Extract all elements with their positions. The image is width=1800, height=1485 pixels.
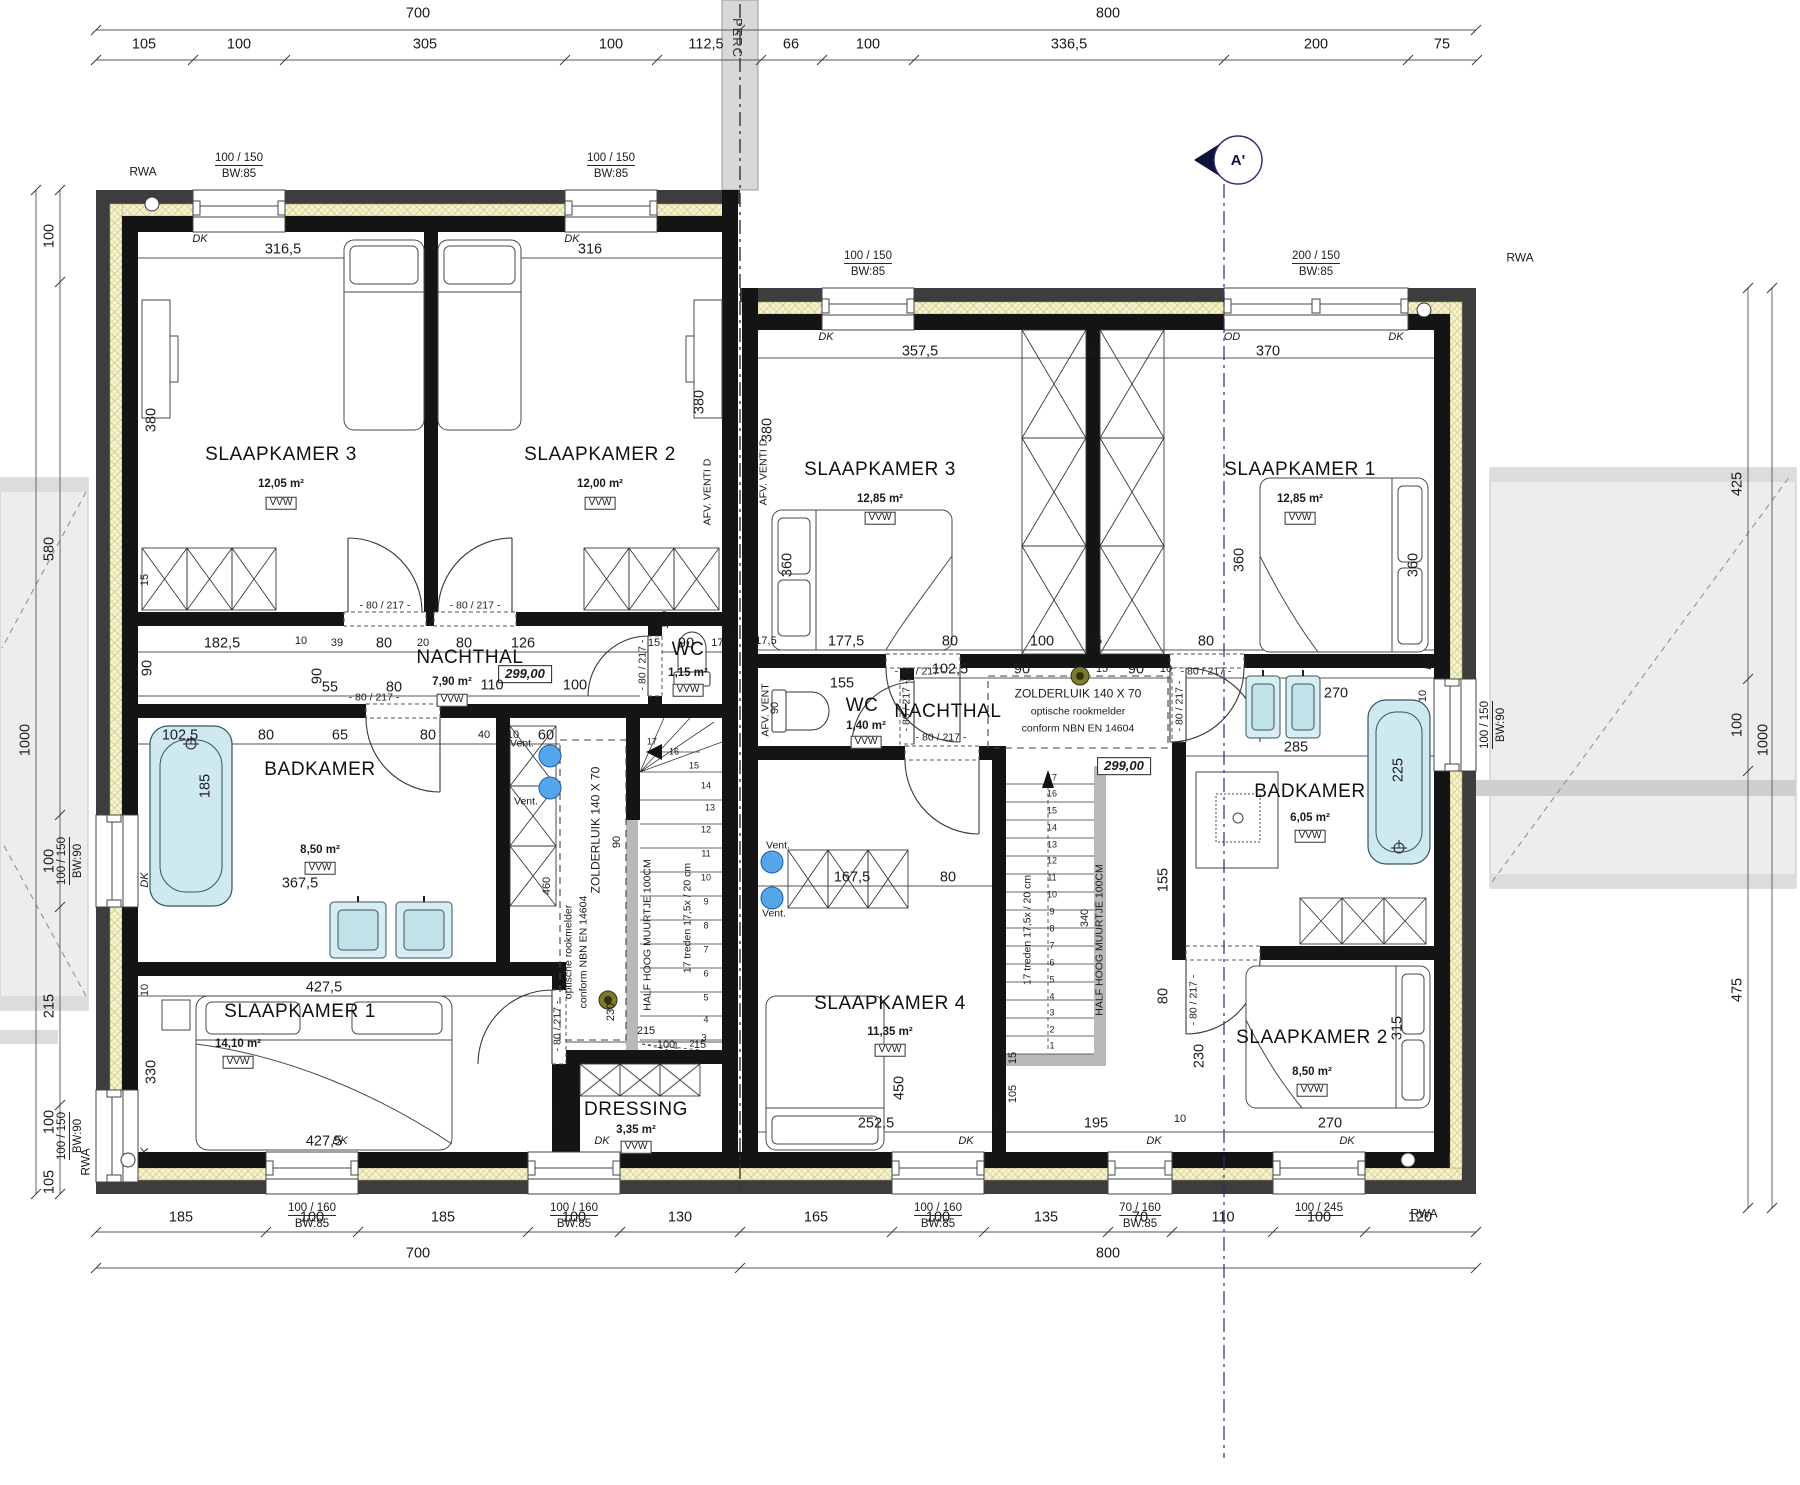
dk-labels-label: DK [1339,1136,1354,1148]
stair-left-label: 10 [701,873,711,882]
window-labels-label: 70 / 160 [1119,1202,1161,1216]
stair-right-label: 12 [1047,856,1057,865]
stair-left-label: 2 [689,1039,694,1048]
dims-bottom-label: 130 [668,1210,692,1225]
dims-top-label: 700 [406,6,430,21]
dims-inner-left-label: 185 [198,774,213,798]
stair-right-label: 17 [1047,773,1057,782]
dims-inner-left-label: 230 [606,1003,618,1021]
dims-inner-left-label: 80 [386,680,402,695]
dims-left-label: 1000 [18,724,33,756]
dims-top-label: 305 [413,37,437,52]
dims-inner-right-label: 155 [830,676,854,691]
annotations-label: optische rookmelder [1031,706,1126,717]
dims-right-label: 100 [1730,713,1745,737]
dims-inner-left-label: 10 [140,984,152,996]
annotations-label: ZOLDERLUIK 140 X 70 [590,767,603,894]
vent-labels-label: Vent. [514,796,538,807]
door-labels-label: - 80 / 217 - [637,640,648,691]
dk-labels-label: DK [1423,654,1435,669]
room-labels-left-label: DRESSING [584,1100,688,1120]
room-labels-left-label: VVW [585,497,616,510]
door-labels-label: - 80 / 217 - [901,681,912,732]
floorplan-canvas: 700800105100305100112,566100336,52007518… [0,0,1800,1485]
rwa-labels-label: RWA [1506,252,1533,265]
window-labels-label: 100 / 150 [56,837,70,885]
room-labels-right-label: BADKAMER [1254,782,1365,802]
dk-labels-label: DK [192,234,207,246]
dims-inner-right-label: 15 [1087,346,1099,358]
window-labels-label: BW:85 [1123,1218,1157,1230]
stair-right-label: 7 [1049,941,1054,950]
room-labels-left-label: 7,90 m² [432,676,472,688]
room-labels-right-label: VVW [1285,512,1316,525]
door-labels-label: - 80 / 217 - [450,600,501,611]
dims-inner-right-label: 370 [1256,344,1280,359]
dims-inner-right-label: 177,5 [828,634,864,649]
dims-inner-left-label: 15 [140,574,152,586]
dk-labels-label: OD [1224,332,1241,344]
dims-right-label: 425 [1730,472,1745,496]
room-labels-left-label: 8,50 m² [300,844,340,856]
dims-top-label: 66 [783,37,799,52]
dims-inner-left-label: 17,5 [711,638,732,650]
dims-inner-left-label: 10 [507,730,519,742]
stair-left-label: 9 [703,897,708,906]
dims-inner-left-label: 380 [692,390,707,414]
dims-inner-left-label: 316 [578,242,602,257]
door-labels-label: - 80 / 217 - [552,1001,563,1052]
stair-left-label: 13 [705,803,715,812]
window-labels-label: BW:85 [921,1218,955,1230]
dims-inner-right-label: 270 [1324,686,1348,701]
window-labels-label: BW:90 [1495,708,1507,742]
window-labels-label: 100 / 150 [215,152,263,166]
dims-inner-right-label: 102,5 [932,662,968,677]
room-labels-right-label: VVW [1297,1084,1328,1097]
stair-left-label: 11 [701,849,710,858]
dims-inner-left-label: 65 [332,728,348,743]
dims-inner-left-label: 20 [417,638,429,650]
dims-inner-right-label: 315 [1390,1016,1405,1040]
annotations-label: 17 treden 17,5x / 20 cm [1022,875,1033,985]
dims-inner-left-label: 10 [295,636,307,648]
vent-labels-label: Vent. [762,908,786,919]
dims-top-label: 100 [856,37,880,52]
dims-inner-left-label: 460 [542,877,554,895]
dims-inner-left-label: 100 [657,1040,675,1052]
dims-inner-right-label: 270 [1318,1116,1342,1131]
room-labels-left-label: VVW [673,684,704,697]
rwa-labels-label: RWA [80,1148,93,1175]
dims-inner-left-label: 55 [322,680,338,695]
section-marker-label: A' [1231,153,1245,169]
stair-left-label: 8 [703,921,708,930]
door-labels-label: - 80 / 217 - [916,732,967,743]
stair-left-label: 12 [701,825,711,834]
window-labels-label: 100 / 150 [587,152,635,166]
door-labels-label: - 80 / 217 - [1174,681,1185,732]
door-labels-label: - 80 / 217 - [360,600,411,611]
stair-right-label: 8 [1049,924,1054,933]
stair-left-label: 17 [647,737,657,746]
dims-top-label: 800 [1096,6,1120,21]
dims-inner-left-label: 367,5 [282,876,318,891]
dims-left-label: 580 [42,537,57,561]
annotations-label: 17 treden 17,5x / 20 cm [682,863,693,973]
dims-inner-left-label: 80 [420,728,436,743]
height-boxes-label: 299,00 [498,665,552,683]
dims-inner-right-label: 380 [760,418,775,442]
room-labels-left-label: VVW [305,862,336,875]
dims-inner-left-label: 427,5 [306,980,342,995]
stair-left-label: 14 [701,781,711,790]
dims-inner-right-label: 15 [1096,664,1108,676]
stair-right-label: 6 [1049,958,1054,967]
dims-top-label: 112,5 [688,37,723,52]
window-labels-label: BW:85 [295,1218,329,1230]
stair-right-label: 5 [1049,975,1054,984]
room-labels-right-label: VVW [865,512,896,525]
window-labels-label: 100 / 150 [844,250,892,264]
room-labels-left-label: SLAAPKAMER 3 [205,445,357,465]
annotations-label: conform NBN EN 14604 [1022,723,1135,734]
room-labels-right-label: VVW [875,1044,906,1057]
stair-left-label: 5 [703,993,708,1002]
dk-labels-label: DK [594,1136,609,1148]
dims-inner-right-label: 450 [892,1076,907,1100]
dims-inner-right-label: 10 [1174,1114,1186,1126]
dims-inner-left-label: 80 [258,728,274,743]
stair-right-label: 14 [1047,823,1057,832]
dims-inner-right-label: 100 [1030,634,1054,649]
door-labels-label: - 80 / 217 - [1181,666,1232,677]
dims-right-label: 1000 [1756,724,1771,756]
dims-top-label: 105 [132,37,156,52]
dims-top-label: 200 [1304,37,1328,52]
labels-layer: 700800105100305100112,566100336,52007518… [0,0,1800,1485]
dims-bottom-label: 185 [431,1210,455,1225]
window-labels-label: BW:90 [72,844,84,878]
dk-labels-label: DK [958,1136,973,1148]
dk-labels-label: DK [1146,1136,1161,1148]
stair-left-label: 16 [669,747,679,756]
dims-inner-left-label: 130 [660,611,672,629]
annotations-label: ZOLDERLUIK 140 X 70 [1015,688,1142,701]
annotations-label: AFV. VENTI D [702,459,713,526]
annotations-label: conform NBN EN 14604 [578,896,589,1009]
stair-right-label: 15 [1047,806,1057,815]
room-labels-left-label: VVW [621,1141,652,1154]
window-labels-label: 100 / 160 [914,1202,962,1216]
window-labels-label: 100 / 150 [1479,701,1493,749]
dims-inner-left-label: 40 [478,730,490,742]
dims-inner-left-label: 10 [424,242,436,254]
dims-inner-right-label: 167,5 [834,870,870,885]
room-labels-right-label: 6,05 m² [1290,812,1330,824]
room-labels-right-label: 11,35 m² [867,1026,912,1038]
window-labels-label: BW:85 [557,1218,591,1230]
stair-right-label: 4 [1049,992,1054,1001]
dims-inner-left-label: 182,5 [204,636,240,651]
dims-inner-right-label: 225 [1391,758,1406,782]
stair-right-label: 16 [1047,789,1057,798]
dims-inner-left-label: 316,5 [265,242,301,257]
room-labels-right-label: 1,40 m² [846,720,886,732]
dims-top-label: 75 [1434,37,1450,52]
dims-inner-right-label: 230 [1192,1044,1207,1068]
dims-inner-left-label: 15 [648,638,660,650]
dims-inner-left-label: 427,5 [306,1134,342,1149]
dims-top-label: 100 [227,37,251,52]
window-labels-label: 100 / 150 [56,1112,70,1160]
dims-inner-right-label: 80 [1198,634,1214,649]
dims-bottom-label: 800 [1096,1246,1120,1261]
dims-bottom-label: 165 [804,1210,828,1225]
window-labels-label: 100 / 160 [288,1202,336,1216]
room-labels-right-label: SLAAPKAMER 3 [804,460,956,480]
dims-top-label: 100 [599,37,623,52]
dims-inner-right-label: 80 [942,634,958,649]
dims-inner-right-label: 357,5 [902,344,938,359]
dims-inner-left-label: 110 [480,678,503,693]
room-labels-right-label: VVW [851,736,882,749]
door-labels-label: - 80 / 217 - [1188,975,1199,1026]
dims-inner-right-label: 105 [1008,1085,1020,1103]
room-labels-left-label: VVW [223,1056,254,1069]
dims-top-label: 336,5 [1051,37,1087,52]
window-labels-label: BW:85 [851,266,885,278]
dims-inner-right-label: 10 [1160,664,1172,676]
dims-inner-left-label: 102,5 [162,728,198,743]
stair-right-label: 9 [1049,907,1054,916]
window-labels-label: 200 / 150 [1292,250,1340,264]
annotations-label: HALF HOOG MUURTJE 100CM [1094,864,1105,1016]
dims-inner-left-label: 100 [563,678,587,693]
dims-inner-right-label: 195 [1084,1116,1108,1131]
dims-inner-left-label: 215 [637,1026,655,1038]
room-labels-right-label: SLAAPKAMER 4 [814,994,966,1014]
annotations-label: optische rookmelder [563,905,574,1000]
dims-inner-left-label: 90 [678,636,694,651]
dims-inner-right-label: 360 [1406,553,1421,577]
room-labels-right-label: 12,85 m² [1277,493,1323,505]
dims-bottom-label: 700 [406,1246,430,1261]
dk-labels-label: DK [140,1147,152,1162]
dims-inner-right-label: 15 [993,1118,1005,1130]
dims-left-label: 100 [42,224,57,248]
dims-inner-right-label: 15 [1090,636,1102,648]
dims-inner-right-label: 285 [1284,740,1308,755]
dims-inner-right-label: 80 [940,870,956,885]
annotations-label: HALF HOOG MUURTJE 100CM [642,859,653,1011]
window-labels-label: 100 / 245 [1295,1202,1343,1216]
rwa-labels-label: RWA [129,166,156,179]
dims-inner-right-label: 10 [1418,690,1430,702]
room-labels-right-label: 8,50 m² [1292,1066,1332,1078]
room-labels-left-label: 1,15 m² [668,667,708,679]
dims-inner-right-label: 340 [1080,909,1092,927]
room-labels-left-label: BADKAMER [264,760,375,780]
height-boxes-label: 299,00 [1097,757,1151,775]
window-labels-label: BW:85 [1299,266,1333,278]
dims-inner-right-label: 360 [1232,548,1247,572]
dims-bottom-label: 185 [169,1210,193,1225]
stair-right-label: 10 [1047,890,1057,899]
dims-inner-right-label: 252,5 [858,1116,894,1131]
stair-left-label: 3 [701,1033,706,1042]
room-labels-left-label: VVW [437,694,468,707]
dims-inner-right-label: 80 [1156,988,1171,1004]
rwa-labels-label: RWA [1410,1208,1437,1221]
dims-bottom-label: 110 [1211,1210,1234,1225]
dims-inner-right-label: 90 [1014,662,1030,677]
dims-inner-left-label: 155 [552,1105,564,1123]
stair-right-label: 1 [1049,1041,1054,1050]
dims-inner-right-label: 90 [1128,662,1144,677]
room-labels-left-label: 12,05 m² [258,478,304,490]
dims-bottom-label: 135 [1034,1210,1058,1225]
dims-inner-right-label: 360 [780,553,795,577]
dims-inner-left-label: 60 [538,728,554,743]
dims-left-label: 215 [42,994,57,1018]
stair-right-label: 3 [1049,1008,1054,1017]
dims-inner-right-label: 90 [770,702,782,714]
room-labels-left-label: VVW [266,497,297,510]
dims-inner-left-label: 80 [456,636,472,651]
dk-labels-label: DK [1388,332,1403,344]
dims-inner-left-label: 90 [612,836,624,848]
room-labels-right-label: SLAAPKAMER 2 [1236,1028,1388,1048]
dims-inner-left-label: 380 [144,408,159,432]
window-labels-label: BW:85 [594,168,628,180]
room-labels-left-label: 14,10 m² [215,1038,261,1050]
dims-inner-left-label: 90 [140,660,155,676]
stair-right-label: 13 [1047,840,1057,849]
dk-labels-label: DK [818,332,833,344]
dims-right-label: 475 [1730,978,1745,1002]
room-labels-right-label: SLAAPKAMER 1 [1224,460,1376,480]
stair-left-label: 7 [703,945,708,954]
stair-left-label: 6 [703,969,708,978]
annotations-label: AFV. VENTI D [758,439,769,506]
room-labels-right-label: WC [846,696,879,716]
vent-labels-label: Vent. [766,840,790,851]
stair-right-label: 11 [1047,873,1056,882]
dims-inner-right-label: 155 [1156,868,1171,892]
room-labels-left-label: 12,00 m² [577,478,623,490]
room-labels-right-label: 12,85 m² [857,493,903,505]
dims-inner-left-label: 330 [144,1060,159,1084]
dims-inner-right-label: 15 [1008,1052,1020,1064]
room-labels-left-label: 3,35 m² [616,1124,656,1136]
window-labels-label: 100 / 160 [550,1202,598,1216]
stair-right-label: 2 [1049,1025,1054,1034]
room-labels-left-label: SLAAPKAMER 1 [224,1002,376,1022]
stair-left-label: 15 [689,761,699,770]
dk-labels-label: DK [140,872,152,887]
room-labels-right-label: VVW [1295,830,1326,843]
stair-left-label: 4 [703,1015,708,1024]
dims-inner-left-label: 126 [511,636,535,651]
dims-inner-left-label: 80 [376,636,392,651]
dims-inner-left-label: 39 [331,638,343,650]
room-labels-left-label: SLAAPKAMER 2 [524,445,676,465]
dims-inner-right-label: 17,5 [755,636,776,648]
stair-left-label: 1 [673,1041,678,1050]
window-labels-label: BW:85 [222,168,256,180]
dims-left-label: 105 [42,1170,57,1194]
annotations-label: PERC [730,18,744,58]
